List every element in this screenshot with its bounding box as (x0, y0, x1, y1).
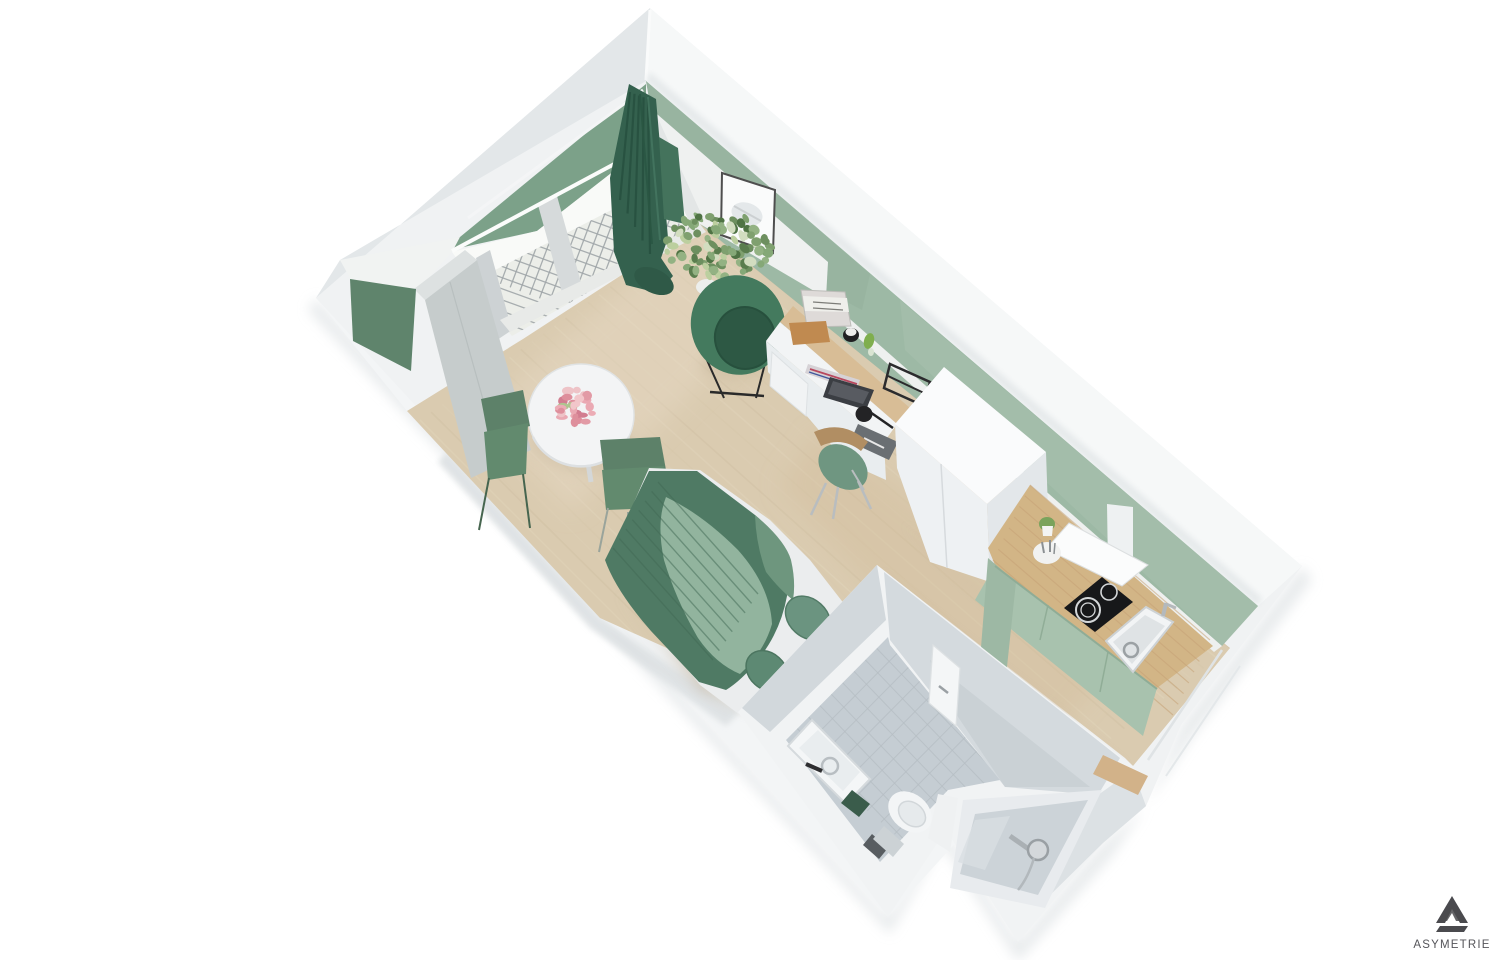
svg-text:ASYMETRIE: ASYMETRIE (1413, 939, 1490, 951)
